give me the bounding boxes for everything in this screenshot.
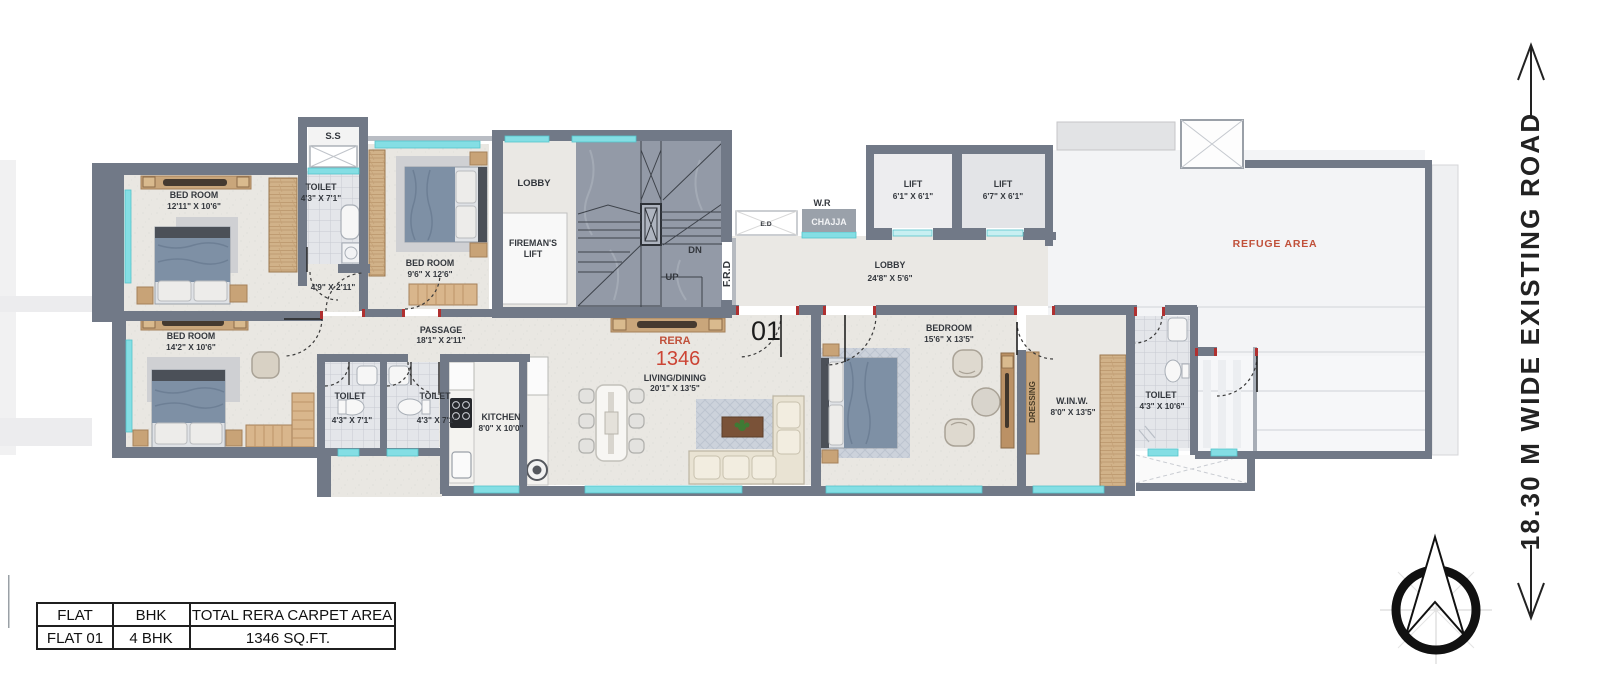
- svg-text:W.R: W.R: [814, 198, 831, 208]
- svg-text:20'1" X 13'5": 20'1" X 13'5": [650, 383, 700, 393]
- svg-text:1346 SQ.FT.: 1346 SQ.FT.: [246, 630, 330, 647]
- svg-text:14'2" X 10'6": 14'2" X 10'6": [166, 342, 216, 352]
- svg-text:FLAT 01: FLAT 01: [47, 630, 103, 647]
- svg-text:15'6" X 13'5": 15'6" X 13'5": [924, 334, 974, 344]
- svg-text:4'3" X 7'1": 4'3" X 7'1": [332, 415, 372, 425]
- svg-text:BED ROOM: BED ROOM: [170, 190, 218, 200]
- svg-text:LIFT: LIFT: [994, 179, 1013, 189]
- svg-text:TOILET: TOILET: [334, 391, 366, 401]
- svg-text:DN: DN: [688, 245, 702, 256]
- svg-text:01: 01: [751, 316, 781, 346]
- svg-text:LIFT: LIFT: [524, 249, 543, 259]
- svg-text:F.R.D: F.R.D: [721, 260, 733, 287]
- svg-text:BED ROOM: BED ROOM: [167, 331, 215, 341]
- svg-text:DRESSING: DRESSING: [1028, 381, 1037, 423]
- svg-text:LOBBY: LOBBY: [875, 260, 906, 270]
- svg-text:18.30 M WIDE EXISTING ROAD: 18.30 M WIDE EXISTING ROAD: [1515, 112, 1545, 551]
- svg-text:8'0" X 10'0": 8'0" X 10'0": [478, 423, 523, 433]
- svg-text:4'3" X 10'6": 4'3" X 10'6": [1139, 401, 1184, 411]
- svg-text:TOTAL RERA CARPET AREA: TOTAL RERA CARPET AREA: [192, 607, 392, 624]
- svg-text:4'3" X 7'1": 4'3" X 7'1": [417, 415, 457, 425]
- svg-text:4'9" X 2'11": 4'9" X 2'11": [311, 282, 356, 292]
- svg-text:PASSAGE: PASSAGE: [420, 325, 462, 335]
- svg-text:8'0" X 13'5": 8'0" X 13'5": [1050, 407, 1095, 417]
- svg-text:BED ROOM: BED ROOM: [406, 258, 454, 268]
- svg-text:4 BHK: 4 BHK: [129, 630, 172, 647]
- svg-text:18'1" X 2'11": 18'1" X 2'11": [416, 335, 465, 345]
- svg-text:LOBBY: LOBBY: [517, 178, 551, 189]
- svg-text:REFUGE AREA: REFUGE AREA: [1233, 238, 1318, 250]
- svg-text:CHAJJA: CHAJJA: [811, 217, 847, 227]
- svg-text:S.S: S.S: [325, 131, 340, 142]
- svg-text:TOILET: TOILET: [1145, 390, 1177, 400]
- svg-text:BEDROOM: BEDROOM: [926, 323, 972, 333]
- svg-text:4'3" X 7'1": 4'3" X 7'1": [301, 193, 341, 203]
- svg-text:FLAT: FLAT: [57, 607, 93, 624]
- svg-text:TOILET: TOILET: [419, 391, 451, 401]
- svg-text:RERA: RERA: [659, 335, 690, 347]
- svg-text:9'6" X 12'6": 9'6" X 12'6": [407, 269, 452, 279]
- svg-text:12'11" X 10'6": 12'11" X 10'6": [167, 201, 221, 211]
- svg-text:BHK: BHK: [136, 607, 167, 624]
- svg-text:1346: 1346: [656, 348, 701, 370]
- svg-text:LIVING/DINING: LIVING/DINING: [644, 373, 707, 383]
- svg-text:KITCHEN: KITCHEN: [481, 412, 520, 422]
- svg-text:24'8" X 5'6": 24'8" X 5'6": [867, 273, 912, 283]
- svg-text:LIFT: LIFT: [904, 179, 923, 189]
- svg-text:FIREMAN'S: FIREMAN'S: [509, 238, 557, 248]
- svg-text:E.D: E.D: [760, 221, 771, 228]
- svg-text:6'1" X 6'1": 6'1" X 6'1": [893, 191, 933, 201]
- svg-text:6'7" X 6'1": 6'7" X 6'1": [983, 191, 1023, 201]
- svg-text:TOILET: TOILET: [305, 182, 337, 192]
- svg-text:W.IN.W.: W.IN.W.: [1056, 396, 1088, 406]
- svg-text:UP: UP: [665, 272, 679, 283]
